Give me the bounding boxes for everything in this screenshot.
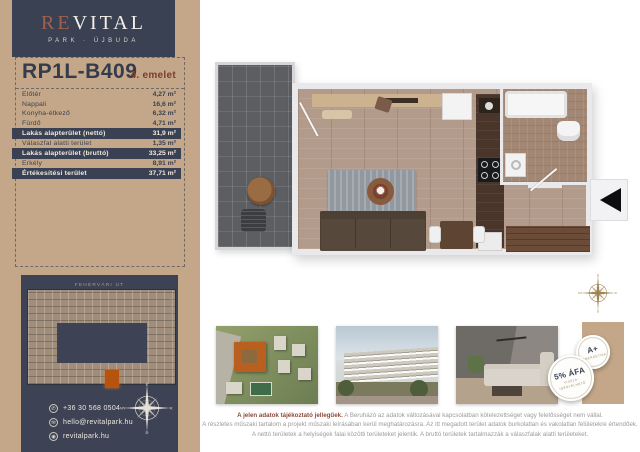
envelope-icon: ✉	[49, 418, 58, 427]
bathroom-floor	[503, 89, 587, 182]
area-table: Előtér4,27 m² Nappali16,6 m² Konyha-étke…	[12, 90, 181, 179]
unit-code: RP1L-B409	[22, 60, 137, 84]
brand-logo-box: REVITAL PARK · ÚJBUDA	[12, 0, 175, 57]
photo-building-exterior	[336, 326, 438, 404]
row-label: Fürdő	[22, 120, 41, 127]
dining-table	[440, 221, 473, 249]
phone-icon: ✆	[49, 404, 58, 413]
table-row-highlight: Lakás alapterület (nettó)31,9 m²	[12, 128, 181, 139]
entrance-landing	[590, 179, 628, 221]
sofa-cushion-line	[390, 219, 391, 248]
phone-number: +36 30 568 0504	[63, 405, 120, 412]
road	[336, 396, 438, 404]
street-label-top: FEHÉRVÁRI ÚT	[21, 283, 178, 288]
website-url: revitalpark.hu	[63, 433, 109, 440]
building-block	[292, 344, 305, 356]
sofa-cushion-line	[355, 219, 356, 248]
dining-chair	[473, 226, 485, 243]
balcony-tiles	[218, 65, 292, 247]
vat-badge: 5% ÁFA VISSZA- IGÉNYELHETŐ	[548, 355, 594, 401]
dining-chair	[429, 226, 441, 243]
balcony-table	[247, 177, 275, 205]
building-facade	[344, 347, 438, 384]
row-value: 1,35 m²	[153, 140, 176, 147]
photo-aerial-masterplan	[216, 326, 318, 404]
row-label: Válaszfal alatti terület	[22, 140, 91, 147]
sofa	[320, 211, 426, 251]
building-block	[298, 368, 311, 380]
photo-interior-living-room	[456, 326, 558, 404]
compass-n: É	[597, 273, 599, 277]
globe-icon: ◉	[49, 432, 58, 441]
toilet	[557, 121, 580, 141]
highlighted-building	[234, 342, 266, 372]
row-label: Konyha-étkező	[22, 110, 70, 117]
compass-w: NY	[120, 405, 126, 410]
burner	[481, 172, 488, 179]
row-value: 37,71 m²	[149, 170, 176, 177]
contact-website[interactable]: ◉ revitalpark.hu	[49, 431, 109, 442]
bathroom	[500, 86, 590, 185]
compass-w: NY	[578, 291, 582, 295]
apartment-flyer-page: REVITAL PARK · ÚJBUDA RP1L-B409 4. emele…	[0, 0, 640, 452]
row-label: Előtér	[22, 91, 41, 98]
brand-logo-re: RE	[41, 12, 73, 34]
row-value: 16,6 m²	[153, 101, 176, 108]
bathtub	[505, 91, 567, 118]
brand-logo: REVITAL	[12, 12, 175, 35]
building-block	[278, 360, 290, 373]
compass-e: K	[170, 405, 173, 410]
compass-s: D	[597, 309, 600, 313]
table-row: Előtér4,27 m²	[12, 90, 181, 100]
row-label: Lakás alapterület (nettó)	[22, 130, 106, 137]
compass-rose-main: É K D NY	[578, 273, 618, 313]
row-value: 4,71 m²	[153, 120, 176, 127]
burner	[492, 161, 499, 168]
row-label: Erkély	[22, 160, 42, 167]
brand-subtitle: PARK · ÚJBUDA	[12, 38, 175, 44]
table-row: Nappali16,6 m²	[12, 100, 181, 110]
balcony-chair	[241, 209, 266, 232]
compass-s: D	[146, 430, 149, 435]
table-row-highlight: Értékesítési terület37,71 m²	[12, 168, 181, 179]
brand-logo-vital: VITAL	[73, 12, 146, 34]
table-row: Fürdő4,71 m²	[12, 119, 181, 129]
title-separator	[16, 88, 184, 89]
disclaimer-line1: A Beruházó az adatok változásával kapcso…	[343, 412, 603, 419]
building-ring	[28, 290, 175, 384]
site-plan: FEHÉRVÁRI ÚT BARÁZDA UTCA ✆ +36 30 568 0…	[21, 275, 178, 452]
row-label: Nappali	[22, 101, 46, 108]
row-label: Értékesítési terület	[22, 170, 87, 177]
sidebar: REVITAL PARK · ÚJBUDA RP1L-B409 4. emele…	[0, 0, 200, 452]
entrance-arrow-icon	[600, 188, 621, 212]
contact-phone[interactable]: ✆ +36 30 568 0504	[49, 403, 120, 414]
row-label: Lakás alapterület (bruttó)	[22, 150, 109, 157]
interior-coffee-table	[492, 386, 522, 396]
compass-e: K	[615, 291, 617, 295]
compass-rose-sidebar: É K D NY	[120, 381, 174, 435]
compass-n: É	[146, 382, 149, 387]
disclaimer-line2: A részletes műszaki tartalom a projekt m…	[202, 421, 637, 428]
tennis-court	[250, 382, 272, 396]
balcony	[215, 62, 295, 250]
kitchen-fridge-cabinet	[442, 93, 472, 120]
stove	[478, 158, 502, 182]
burner	[492, 172, 499, 179]
tree	[338, 380, 354, 396]
disclaimer: A jelen adatok tájékoztató jellegűek. A …	[202, 411, 638, 439]
vat-badge-content: 5% ÁFA VISSZA- IGÉNYELHETŐ	[553, 365, 588, 391]
building-block	[274, 336, 286, 350]
unit-floor-label: 4. emelet	[130, 70, 176, 81]
row-value: 6,32 m²	[153, 110, 176, 117]
row-value: 8,91 m²	[153, 160, 176, 167]
table-row-highlight: Lakás alapterület (bruttó)33,25 m²	[12, 148, 181, 159]
coffee-table	[367, 178, 394, 205]
table-row: Válaszfal alatti terület1,35 m²	[12, 139, 181, 149]
building-block	[226, 382, 242, 394]
washing-machine	[505, 153, 526, 177]
highlighted-unit	[105, 370, 119, 388]
row-value: 31,9 m²	[153, 130, 176, 137]
row-value: 4,27 m²	[153, 91, 176, 98]
disclaimer-lead: A jelen adatok tájékoztató jellegűek.	[237, 412, 343, 419]
pendant-lamp	[496, 328, 527, 341]
kitchen-sink	[479, 98, 500, 113]
courtyard	[57, 323, 147, 363]
street-label-right: BARÁZDA UTCA	[169, 293, 174, 340]
table-row: Erkély8,91 m²	[12, 159, 181, 169]
row-value: 33,25 m²	[149, 150, 176, 157]
plant	[468, 356, 484, 378]
burner	[481, 161, 488, 168]
table-row: Konyha-étkező6,32 m²	[12, 109, 181, 119]
sideboard	[506, 226, 590, 252]
disclaimer-line3: A nettó területek a helyiségek falai köz…	[252, 431, 588, 438]
sofa-pillow	[322, 110, 352, 119]
